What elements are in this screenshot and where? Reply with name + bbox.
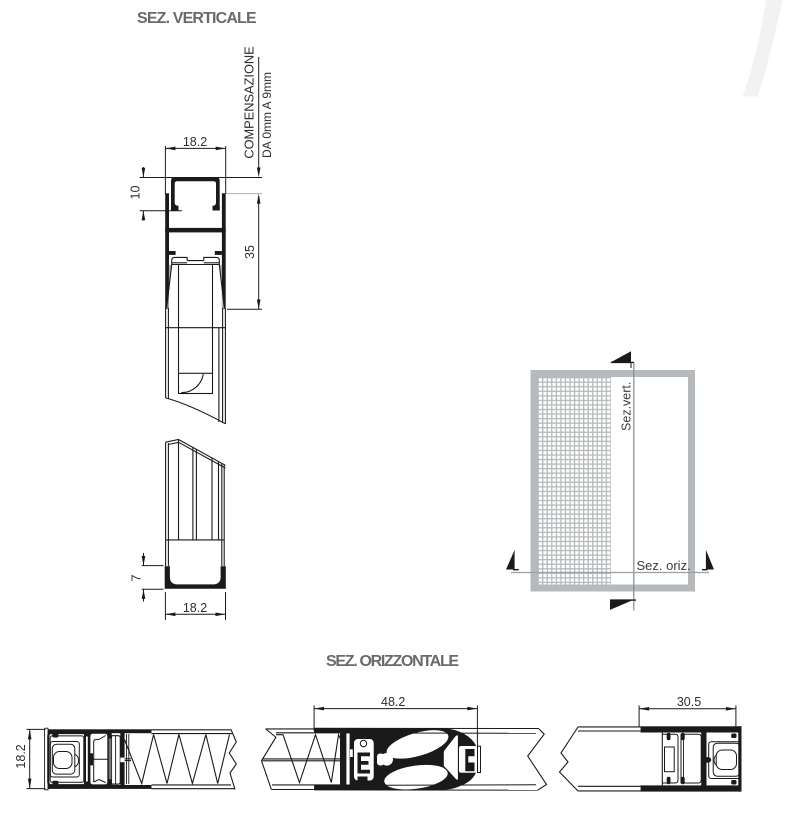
svg-text:Sez. oriz.: Sez. oriz. <box>637 558 691 573</box>
svg-text:35: 35 <box>243 245 257 259</box>
svg-text:18.2: 18.2 <box>14 744 28 768</box>
svg-text:30.5: 30.5 <box>677 695 701 709</box>
svg-text:SEZ. VERTICALE: SEZ. VERTICALE <box>137 10 257 27</box>
svg-text:SEZ. ORIZZONTALE: SEZ. ORIZZONTALE <box>326 653 459 670</box>
svg-text:18.2: 18.2 <box>183 601 207 615</box>
svg-text:10: 10 <box>128 186 142 200</box>
svg-text:18.2: 18.2 <box>183 135 207 149</box>
svg-text:DA 0mm A 9mm: DA 0mm A 9mm <box>260 72 274 158</box>
svg-text:7: 7 <box>129 574 143 581</box>
svg-text:48.2: 48.2 <box>381 695 405 709</box>
svg-text:Sez.vert.: Sez.vert. <box>619 382 633 431</box>
svg-text:COMPENSAZIONE: COMPENSAZIONE <box>242 46 257 158</box>
